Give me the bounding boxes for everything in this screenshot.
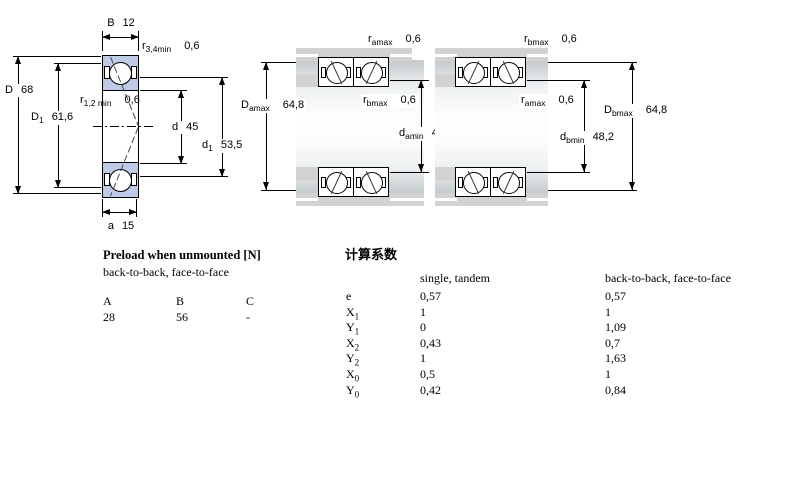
abutment-shoulder (296, 167, 318, 180)
fit-gap (296, 54, 318, 57)
factor-value-single: 1 (420, 351, 426, 366)
dim-label-d1: d153,5 (200, 139, 244, 153)
preload-value-A: 28 (103, 310, 115, 324)
factor-symbol: e (346, 289, 351, 305)
extension-line (140, 77, 228, 78)
extension-line (13, 193, 101, 194)
dim-label-Dbmax: Dbmax64,8 (602, 104, 669, 118)
ball (361, 62, 383, 84)
extension-line (390, 172, 429, 173)
dimension-line (266, 62, 267, 190)
arrow-left (102, 209, 110, 215)
abutment-shoulder (435, 74, 457, 87)
bearing-section (353, 57, 389, 87)
abutment-shoulder (296, 74, 318, 87)
dimension-line (58, 63, 59, 188)
preload-col-A: A (103, 294, 112, 308)
extension-line (527, 172, 590, 173)
dim-label-B: B12 (99, 17, 143, 30)
arrow-up (178, 90, 184, 98)
arrow-up (418, 80, 424, 88)
fit-gap (390, 198, 424, 201)
factor-value-paired: 0,57 (605, 289, 626, 304)
factor-symbol: Y0 (346, 383, 359, 399)
dim-label-dbmin: dbmin48,2 (558, 131, 616, 145)
dim-label-a: a15 (103, 220, 139, 233)
bearing-section (490, 167, 526, 197)
extension-line (13, 56, 101, 57)
dimension-line (222, 77, 223, 177)
arrow-right (129, 209, 137, 215)
arrow-up (55, 63, 61, 71)
arrow-right (131, 34, 139, 40)
bearing-section (490, 57, 526, 87)
arrow-down (219, 169, 225, 177)
extension-line (140, 176, 228, 177)
fit-gap (435, 198, 457, 201)
factors-row: X2 0,43 0,7 (346, 336, 796, 351)
preload-col-B: B (176, 294, 184, 308)
ball (326, 172, 348, 194)
factor-symbol: Y2 (346, 351, 359, 367)
dim-label-Damax: Damax64,8 (239, 99, 306, 113)
preload-subtitle: back-to-back, face-to-face (103, 265, 229, 279)
arrow-up (15, 56, 21, 64)
extension-line (548, 62, 637, 63)
arrow-left (102, 34, 110, 40)
factors-row: Y1 0 1,09 (346, 320, 796, 335)
arrow-down (418, 164, 424, 172)
centerline (93, 126, 153, 127)
extension-line (54, 187, 101, 188)
extension-line (261, 190, 296, 191)
arrow-down (263, 182, 269, 190)
factors-row: X1 1 1 (346, 305, 796, 320)
ball (463, 62, 485, 84)
dimension-line (421, 80, 422, 172)
arrow-down (629, 182, 635, 190)
factor-value-paired: 1,63 (605, 351, 626, 366)
arrow-up (263, 62, 269, 70)
factors-col2-header: back-to-back, face-to-face (605, 271, 731, 285)
arrow-down (15, 186, 21, 194)
factors-row: Y0 0,42 0,84 (346, 383, 796, 398)
factor-value-paired: 0,7 (605, 336, 620, 351)
dimension-line (584, 80, 585, 172)
factor-value-paired: 0,84 (605, 383, 626, 398)
arrow-down (178, 156, 184, 164)
dim-label-r12: r1,2 min0,6 (80, 94, 140, 108)
fit-gap (527, 198, 548, 201)
preload-col-C: C (246, 294, 254, 308)
dim-label-r34: r3,4min0,6 (142, 40, 199, 54)
bearing-section (455, 167, 491, 197)
factor-value-single: 1 (420, 305, 426, 320)
factor-value-single: 0,43 (420, 336, 441, 351)
dimension-line (632, 62, 633, 190)
arrow-up (629, 62, 635, 70)
arrow-up (581, 80, 587, 88)
preload-title: Preload when unmounted [N] (103, 248, 261, 262)
fit-gap (296, 198, 318, 201)
factors-row: X0 0,5 1 (346, 367, 796, 382)
factor-value-paired: 1 (605, 367, 611, 382)
factors-col1-header: single, tandem (420, 271, 490, 285)
preload-value-C: - (246, 310, 250, 324)
bearing-section (318, 57, 354, 87)
factors-row: e 0,57 0,57 (346, 289, 796, 304)
factor-value-paired: 1 (605, 305, 611, 320)
factors-title: 计算系数 (345, 248, 397, 262)
dim-label-D: D68 (3, 84, 35, 97)
factor-value-single: 0,57 (420, 289, 441, 304)
dim-label-ramax: ramax0,6 (368, 33, 421, 47)
bearing-section (455, 57, 491, 87)
factor-symbol: X1 (346, 305, 359, 321)
abutment-shoulder (435, 167, 457, 180)
factors-row: Y2 1 1,63 (346, 351, 796, 366)
fit-gap (435, 54, 457, 57)
factor-value-single: 0,5 (420, 367, 435, 382)
factor-value-single: 0,42 (420, 383, 441, 398)
extension-line (548, 190, 637, 191)
ball (498, 172, 520, 194)
bearing-section (318, 167, 354, 197)
dimension-line (18, 56, 19, 194)
preload-value-B: 56 (176, 310, 188, 324)
arrow-down (55, 180, 61, 188)
fit-gap (527, 54, 548, 57)
extension-line (54, 63, 101, 64)
fit-gap (390, 54, 412, 57)
bearing-section (353, 167, 389, 197)
arrow-down (581, 164, 587, 172)
arrow-up (219, 77, 225, 85)
factor-value-single: 0 (420, 320, 426, 335)
dim-label-rbmax: rbmax0,6 (361, 94, 418, 108)
factor-value-paired: 1,09 (605, 320, 626, 335)
dim-label-rbmax: rbmax0,6 (524, 33, 577, 47)
factor-symbol: X2 (346, 336, 359, 352)
factor-symbol: Y1 (346, 320, 359, 336)
dim-label-ramax: ramax0,6 (519, 94, 576, 108)
factor-symbol: X0 (346, 367, 359, 383)
bearing-upper-section (103, 56, 138, 91)
dim-label-d: d45 (170, 121, 200, 134)
bearing-drawing-page: B12 r3,4min0,6 D68 D161,6 r1,2 min0,6 d4… (0, 0, 800, 500)
dim-label-D1: D161,6 (29, 111, 75, 125)
